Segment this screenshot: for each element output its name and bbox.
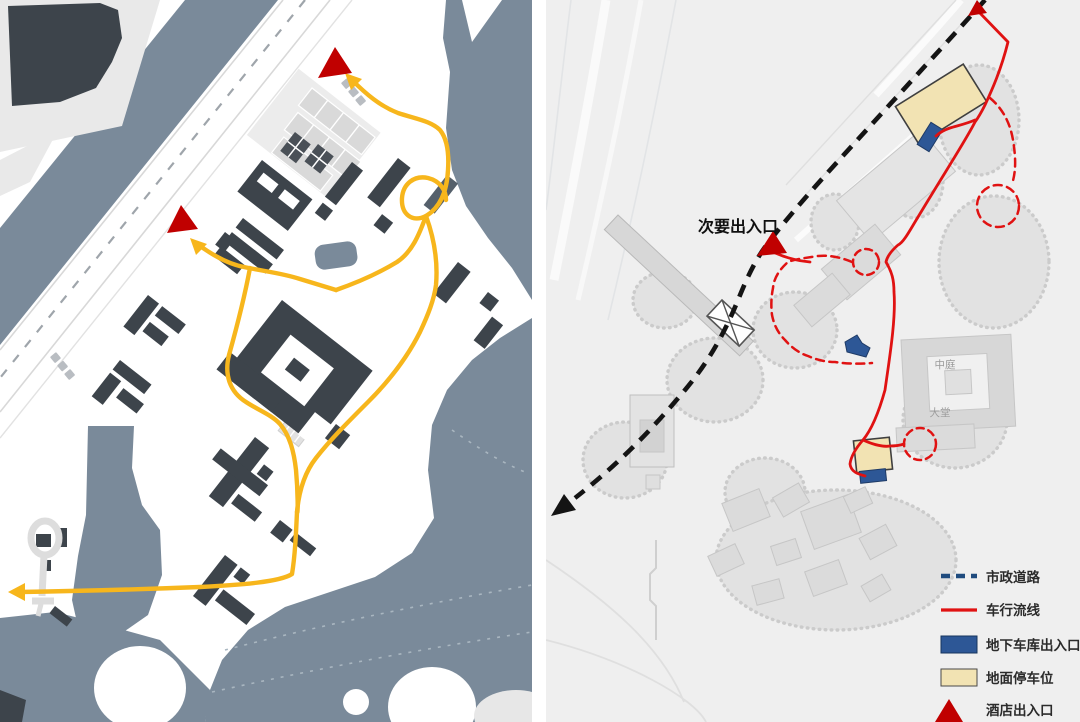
legend-label-municipal-road: 市政道路 (986, 569, 1040, 585)
site-analysis-figure: 次要出入口 中庭 大堂 市政道路 车行流线 地下车库出入口 地面停车位 酒店出入… (0, 0, 1080, 722)
legend-swatch-parking (941, 669, 977, 686)
legend-label-vehicle-route: 车行流线 (986, 602, 1040, 618)
building (10, 702, 20, 715)
legend-label-garage: 地下车库出入口 (986, 637, 1080, 653)
legend-label-hotel-entrance: 酒店出入口 (986, 702, 1054, 718)
lobby-label: 大堂 (930, 406, 951, 419)
legend-swatch-garage (941, 636, 977, 653)
island (343, 689, 369, 715)
secondary-entrance-label: 次要出入口 (698, 217, 778, 236)
building (36, 534, 51, 547)
legend-label-parking: 地面停车位 (986, 670, 1054, 686)
right-circulation-map: 次要出入口 中庭 大堂 市政道路 车行流线 地下车库出入口 地面停车位 酒店出入… (546, 0, 1080, 722)
left-circulation-map (0, 0, 532, 722)
atrium-label: 中庭 (935, 358, 956, 371)
atrium-building (901, 334, 1016, 432)
